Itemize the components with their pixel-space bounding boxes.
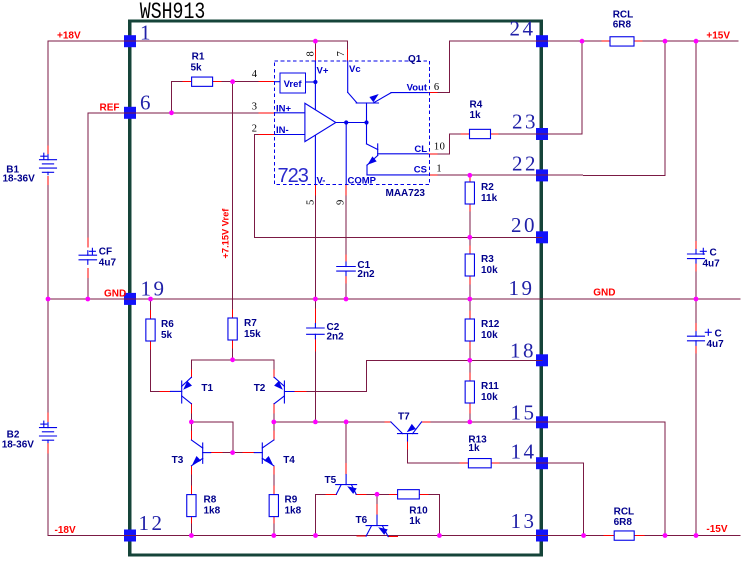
svg-text:10k: 10k [481, 392, 498, 403]
svg-text:+18V: +18V [57, 31, 81, 42]
svg-text:R7: R7 [244, 318, 257, 329]
svg-text:R2: R2 [481, 182, 494, 193]
svg-text:1: 1 [436, 164, 442, 175]
svg-text:T1: T1 [201, 383, 213, 394]
svg-text:1k8: 1k8 [285, 506, 302, 517]
svg-text:15k: 15k [244, 329, 261, 340]
svg-text:1k: 1k [470, 110, 482, 121]
svg-text:3: 3 [252, 102, 258, 113]
svg-text:10: 10 [434, 142, 446, 153]
svg-text:T2: T2 [254, 383, 266, 394]
svg-text:20: 20 [511, 213, 537, 237]
svg-text:IN+: IN+ [276, 104, 292, 115]
svg-text:R4: R4 [470, 100, 483, 111]
svg-text:19: 19 [141, 277, 167, 301]
svg-text:IN-: IN- [276, 125, 289, 136]
svg-text:R11: R11 [481, 381, 499, 392]
svg-text:5: 5 [306, 199, 317, 205]
svg-text:10k: 10k [481, 265, 498, 276]
svg-text:1k8: 1k8 [204, 506, 221, 517]
svg-text:6: 6 [140, 91, 153, 115]
svg-text:+15V: +15V [706, 31, 730, 42]
svg-text:R6: R6 [161, 319, 174, 330]
svg-text:-18V: -18V [55, 525, 76, 536]
svg-text:R1: R1 [192, 52, 205, 63]
svg-text:5k: 5k [191, 63, 203, 74]
svg-text:18: 18 [510, 339, 536, 363]
svg-text:2n2: 2n2 [327, 332, 345, 343]
svg-text:18-36V: 18-36V [3, 174, 36, 185]
svg-text:23: 23 [512, 110, 538, 134]
svg-text:CS: CS [414, 165, 427, 176]
svg-text:2: 2 [252, 124, 258, 135]
svg-text:4u7: 4u7 [707, 339, 725, 350]
svg-text:6R8: 6R8 [614, 517, 633, 528]
svg-text:COMP: COMP [348, 176, 377, 187]
svg-text:2n2: 2n2 [357, 269, 375, 280]
svg-text:C: C [710, 248, 717, 259]
svg-text:12: 12 [139, 511, 165, 535]
svg-text:C: C [715, 329, 722, 340]
svg-text:8: 8 [306, 51, 317, 57]
svg-text:14: 14 [511, 440, 537, 464]
svg-text:V-: V- [317, 176, 326, 187]
svg-text:7: 7 [336, 51, 347, 57]
svg-text:T5: T5 [325, 475, 337, 486]
svg-text:5k: 5k [161, 330, 173, 341]
svg-text:GND: GND [104, 289, 126, 300]
svg-text:T4: T4 [283, 455, 295, 466]
svg-text:1k: 1k [409, 516, 421, 527]
svg-text:-15V: -15V [706, 524, 727, 535]
svg-text:6R8: 6R8 [613, 20, 632, 31]
svg-text:WSH913: WSH913 [140, 0, 206, 25]
svg-text:R8: R8 [204, 495, 217, 506]
svg-text:723: 723 [278, 165, 309, 187]
svg-text:REF: REF [100, 103, 120, 114]
svg-text:CF: CF [99, 246, 112, 257]
svg-text:Q1: Q1 [408, 54, 422, 65]
svg-text:13: 13 [511, 509, 537, 533]
svg-text:R9: R9 [285, 495, 298, 506]
svg-text:10k: 10k [481, 330, 498, 341]
svg-text:Vc: Vc [349, 64, 361, 75]
svg-text:18-36V: 18-36V [2, 440, 35, 451]
svg-text:19: 19 [509, 276, 535, 300]
svg-text:R10: R10 [409, 506, 428, 517]
svg-text:1k: 1k [468, 443, 480, 454]
svg-text:Vout: Vout [407, 83, 428, 94]
svg-text:15: 15 [511, 401, 537, 425]
svg-text:R3: R3 [481, 254, 494, 265]
svg-text:11k: 11k [481, 193, 498, 204]
svg-text:T7: T7 [398, 412, 410, 423]
svg-text:GND: GND [593, 288, 615, 299]
svg-text:+7.15V Vref: +7.15V Vref [221, 208, 231, 259]
svg-text:T3: T3 [172, 455, 184, 466]
svg-text:MAA723: MAA723 [386, 188, 426, 199]
svg-text:6: 6 [434, 82, 440, 93]
svg-text:9: 9 [336, 199, 347, 205]
svg-text:RCL: RCL [614, 507, 635, 518]
svg-text:R12: R12 [481, 319, 500, 330]
svg-text:24: 24 [510, 17, 536, 41]
svg-text:V+: V+ [317, 66, 329, 77]
svg-text:4u7: 4u7 [703, 259, 721, 270]
svg-text:4u7: 4u7 [99, 258, 117, 269]
svg-text:22: 22 [512, 152, 538, 176]
svg-text:Vref: Vref [284, 79, 303, 90]
svg-text:T6: T6 [356, 515, 368, 526]
svg-text:CL: CL [414, 144, 427, 155]
svg-text:4: 4 [252, 69, 258, 80]
